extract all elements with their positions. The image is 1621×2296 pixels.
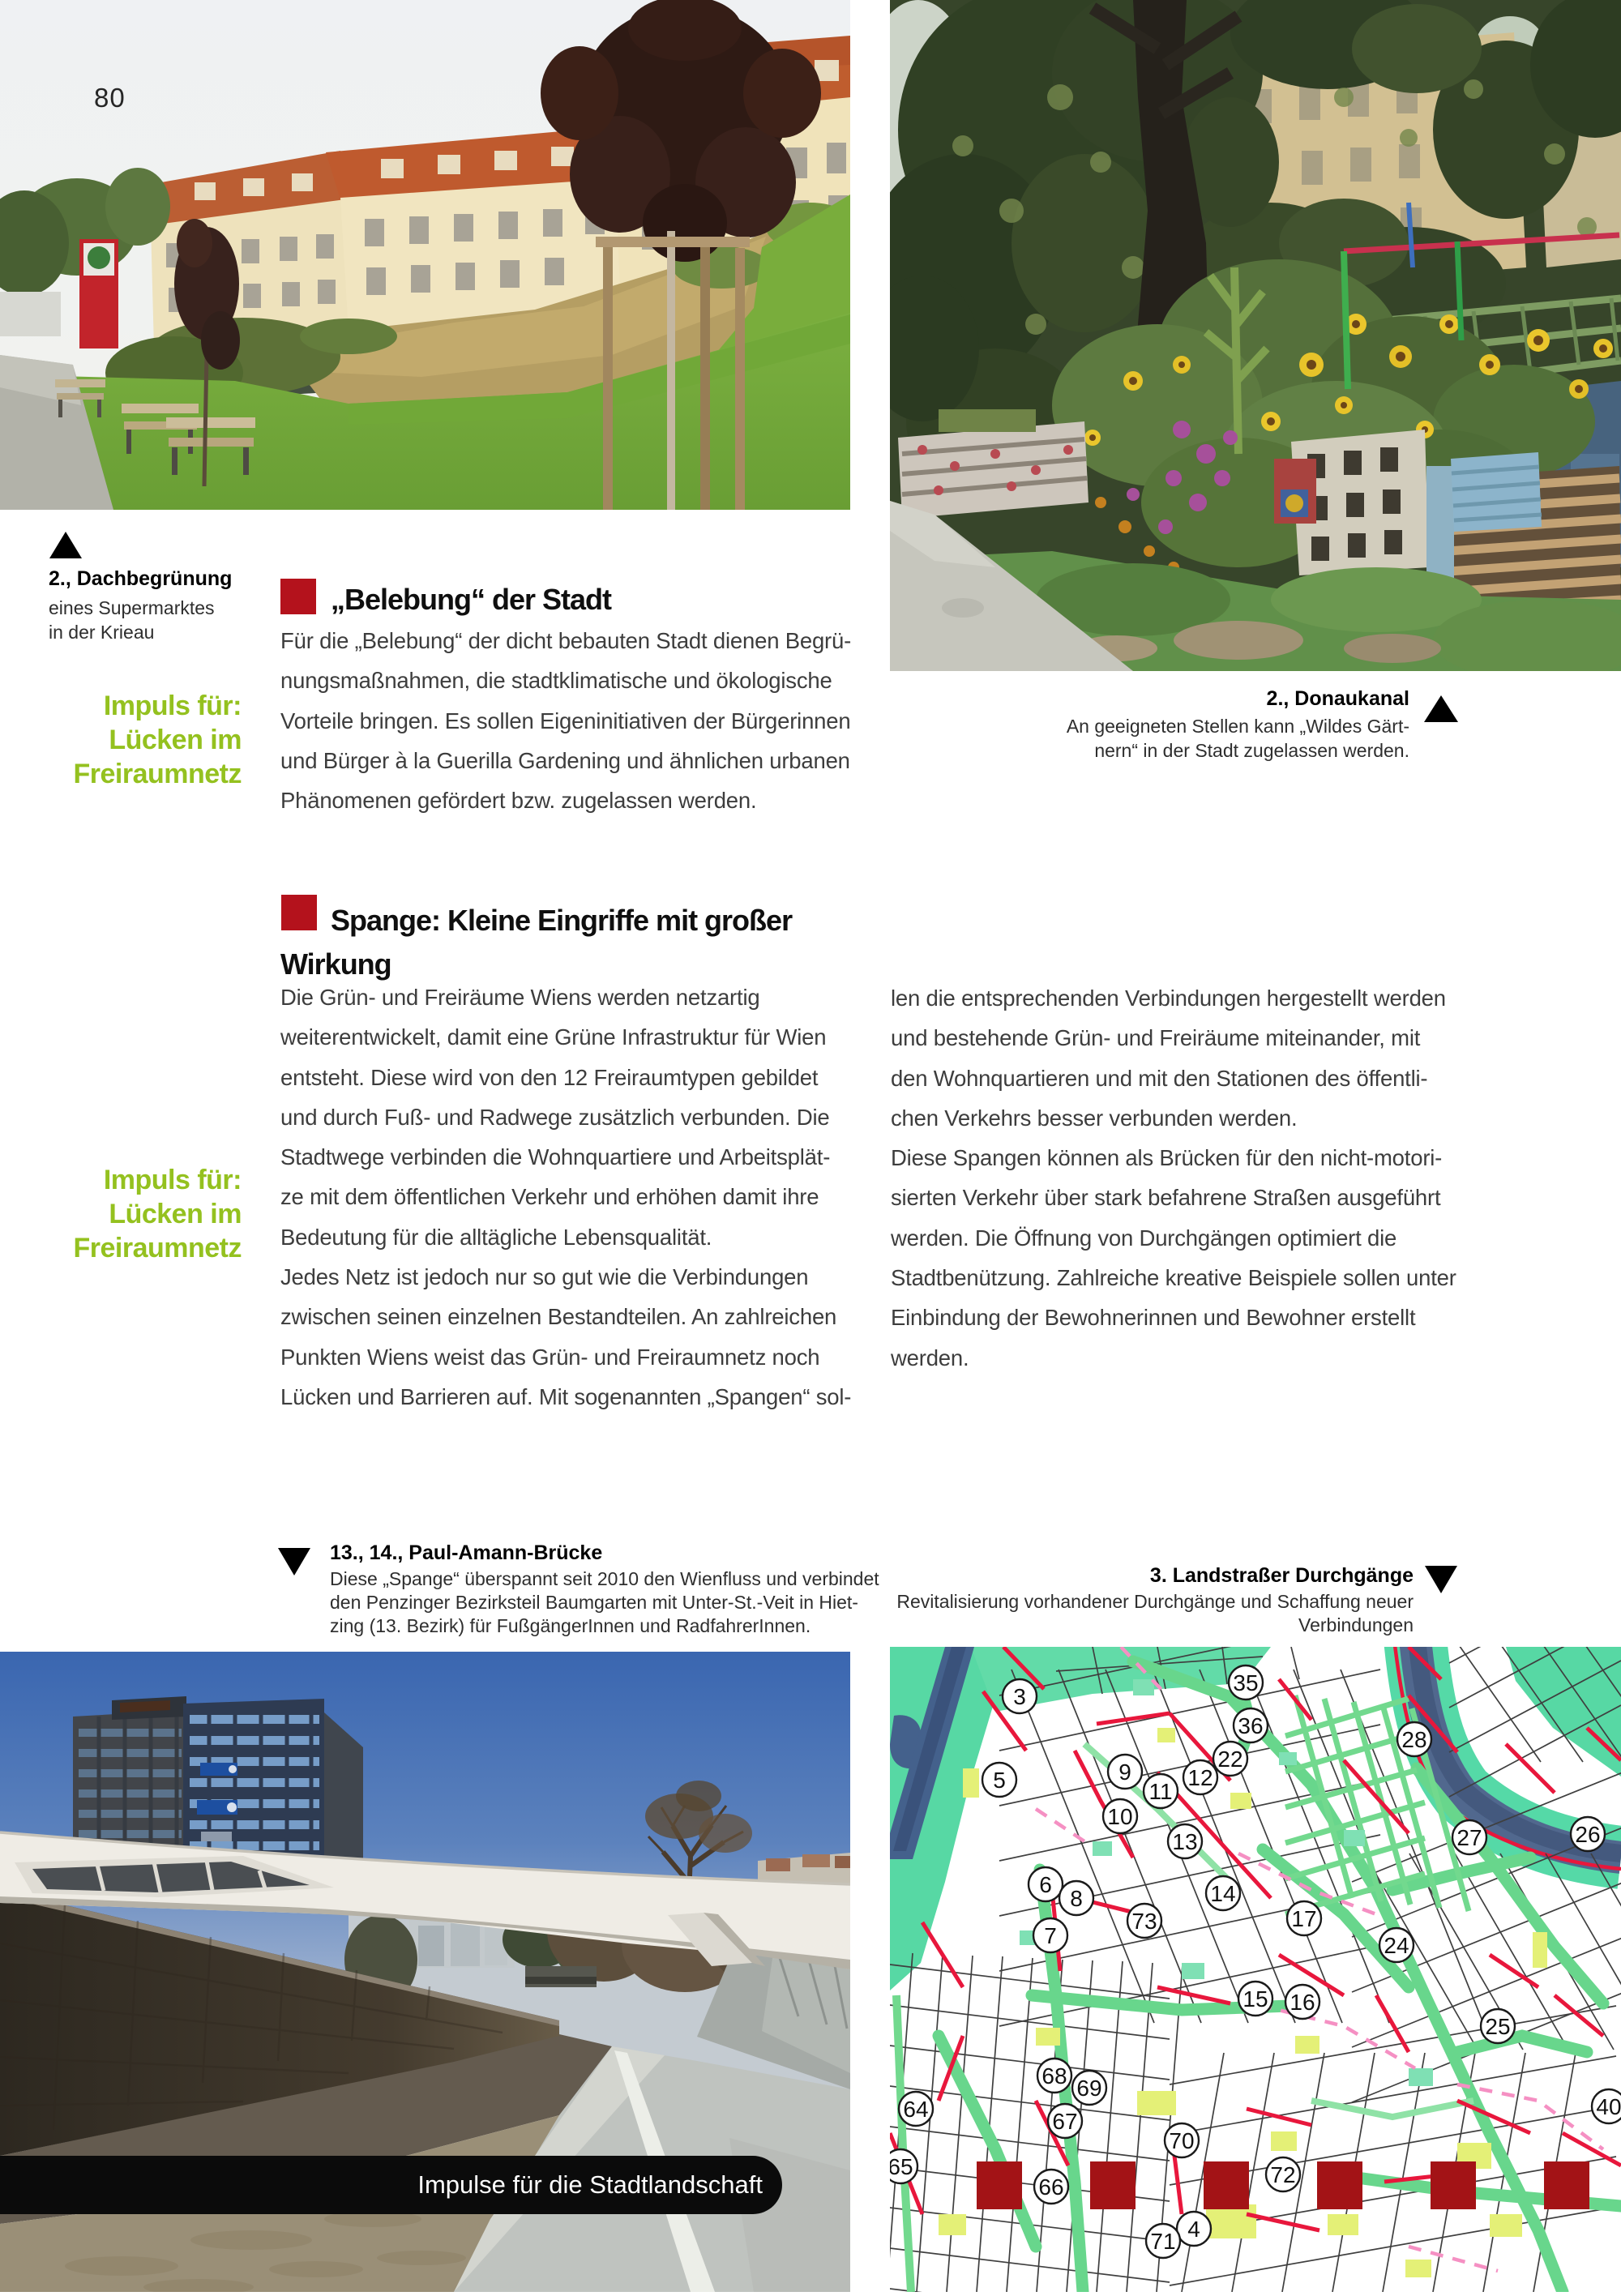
svg-text:72: 72 bbox=[1270, 2162, 1295, 2187]
svg-text:14: 14 bbox=[1210, 1881, 1235, 1906]
svg-text:22: 22 bbox=[1217, 1747, 1242, 1772]
svg-text:64: 64 bbox=[903, 2097, 928, 2122]
svg-text:17: 17 bbox=[1291, 1906, 1316, 1931]
svg-text:11: 11 bbox=[1148, 1779, 1172, 1804]
svg-text:36: 36 bbox=[1238, 1713, 1263, 1738]
svg-text:12: 12 bbox=[1187, 1765, 1213, 1790]
svg-text:25: 25 bbox=[1485, 2014, 1510, 2039]
svg-text:15: 15 bbox=[1242, 1986, 1268, 2012]
svg-text:5: 5 bbox=[993, 1768, 1006, 1793]
svg-text:16: 16 bbox=[1290, 1990, 1315, 2015]
svg-text:28: 28 bbox=[1401, 1727, 1426, 1752]
svg-text:73: 73 bbox=[1131, 1909, 1157, 1934]
svg-text:67: 67 bbox=[1052, 2109, 1077, 2134]
svg-text:7: 7 bbox=[1044, 1923, 1057, 1948]
svg-text:8: 8 bbox=[1070, 1886, 1083, 1911]
svg-text:26: 26 bbox=[1575, 1822, 1600, 1847]
svg-text:24: 24 bbox=[1384, 1933, 1409, 1958]
svg-text:10: 10 bbox=[1107, 1804, 1132, 1829]
svg-text:71: 71 bbox=[1150, 2229, 1175, 2254]
svg-text:40: 40 bbox=[1596, 2094, 1621, 2119]
svg-text:3: 3 bbox=[1013, 1684, 1026, 1709]
svg-text:9: 9 bbox=[1118, 1759, 1131, 1785]
svg-text:66: 66 bbox=[1038, 2174, 1063, 2200]
svg-text:70: 70 bbox=[1169, 2128, 1194, 2153]
svg-text:35: 35 bbox=[1233, 1670, 1258, 1695]
svg-text:13: 13 bbox=[1172, 1829, 1197, 1854]
svg-text:4: 4 bbox=[1187, 2217, 1200, 2242]
svg-text:65: 65 bbox=[890, 2154, 913, 2179]
svg-text:68: 68 bbox=[1041, 2063, 1067, 2089]
svg-text:69: 69 bbox=[1076, 2076, 1101, 2101]
svg-text:27: 27 bbox=[1456, 1825, 1482, 1850]
svg-text:6: 6 bbox=[1039, 1872, 1052, 1897]
